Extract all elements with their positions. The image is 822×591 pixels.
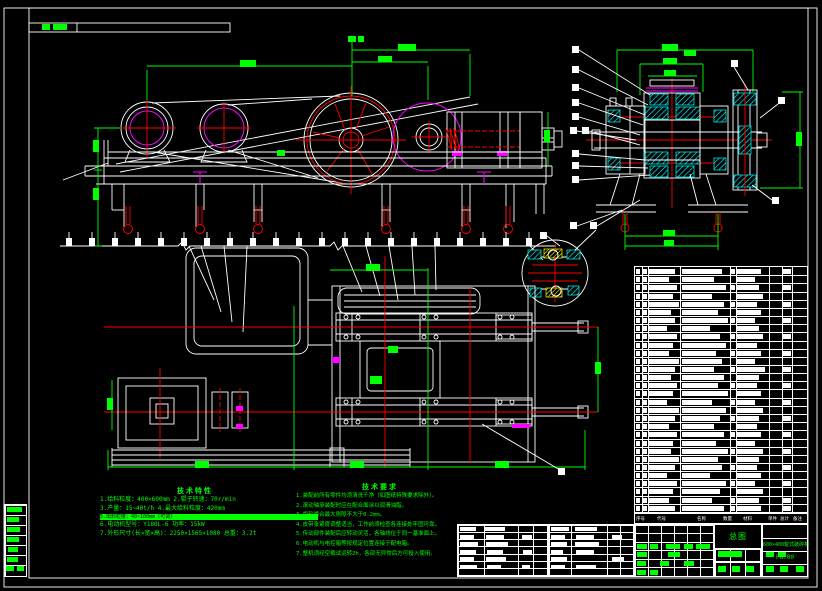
bom-header-label: 名称	[697, 516, 706, 522]
bom-cell-text-block	[636, 359, 640, 364]
bom-cell-text-block	[636, 400, 640, 405]
bom-cell-text-block	[783, 318, 791, 323]
bom-cell-text-block	[783, 481, 791, 486]
bom-cell-text-block	[682, 489, 720, 494]
bom-cell-text-block	[643, 457, 647, 462]
approval-grid	[634, 524, 714, 577]
redacted-text-block	[637, 544, 647, 549]
bom-cell-text-block	[682, 391, 728, 396]
bom-cell-text-block	[649, 416, 675, 421]
bom-cell-text-block	[731, 334, 735, 339]
redacted-text-block	[696, 544, 710, 549]
bom-cell-text-block	[737, 277, 755, 282]
bom-cell-text-block	[737, 318, 755, 323]
tech-requirement-item: 5.传动部件装配后应转动灵活，各轴线位于同一基准面上。	[296, 530, 464, 540]
tech-spec-highlight-line: 5.出料粒度：40~100mm（可调）	[100, 514, 318, 520]
grid-cell	[687, 567, 701, 577]
bom-cell-text-block	[682, 416, 720, 421]
redacted-text-block	[523, 550, 532, 554]
bom-cell-text-block	[731, 498, 735, 503]
bom-cell-text-block	[649, 367, 675, 372]
bom-cell-text-block	[682, 457, 718, 462]
bom-cell-text-block	[737, 310, 761, 315]
redacted-text-block	[460, 557, 474, 561]
bom-cell-text-block	[682, 302, 724, 307]
bom-cell-text-block	[636, 498, 640, 503]
bom-cell-text-block	[731, 318, 735, 323]
redacted-text-block	[637, 561, 646, 566]
redacted-text-block	[766, 566, 774, 572]
bom-cell-text-block	[731, 302, 735, 307]
bom-cell-text-block	[649, 343, 673, 348]
bom-cell-text-block	[636, 441, 640, 446]
bom-cell-text-block	[636, 449, 640, 454]
bom-cell-text-block	[649, 489, 673, 494]
bom-cell-text-block	[682, 359, 722, 364]
redacted-text-block	[485, 527, 505, 531]
bom-cell-text-block	[643, 326, 647, 331]
bom-cell-text-block	[682, 318, 728, 323]
bom-cell-text-block	[682, 343, 726, 348]
bom-cell-text-block	[643, 302, 647, 307]
bom-cell-text-block	[636, 457, 640, 462]
tech-spec-block: 技术特性 1.给料粒度：400×600mm 2.辊子转速：70r/min 3.产…	[100, 486, 324, 538]
grid-cell	[458, 568, 485, 576]
bom-cell-text-block	[643, 441, 647, 446]
bom-cell-text-block	[731, 416, 735, 421]
bom-cell-text-block	[636, 473, 640, 478]
bom-cell-text-block	[649, 408, 679, 413]
bom-cell-text-block	[643, 383, 647, 388]
bom-cell-text-block	[643, 359, 647, 364]
bom-cell-text-block	[737, 489, 763, 494]
part-callout-tag	[296, 238, 302, 246]
bom-cell-text-block	[737, 285, 759, 290]
bom-cell-text-block	[783, 367, 791, 372]
redacted-text-block	[576, 535, 594, 539]
redacted-text-block	[486, 542, 508, 546]
bom-cell-text-block	[643, 318, 647, 323]
grid-cell	[533, 568, 548, 576]
bom-cell-text-block	[783, 285, 791, 290]
bom-cell-text-block	[737, 408, 763, 413]
bom-cell-text-block	[682, 294, 712, 299]
part-callout-tag	[227, 238, 233, 246]
part-callout-tag	[89, 238, 95, 246]
bom-cell-text-block	[731, 351, 735, 356]
bom-cell-text-block	[643, 294, 647, 299]
redacted-text-block	[732, 566, 740, 572]
bom-cell-text-block	[682, 408, 726, 413]
bom-cell-text-block	[737, 343, 757, 348]
bom-cell-text-block	[636, 408, 640, 413]
bom-cell-text-block	[737, 441, 755, 446]
redacted-text-block	[666, 544, 680, 549]
bom-cell-text-block	[649, 424, 669, 429]
part-callout-tag	[411, 238, 417, 246]
redacted-text-block	[551, 527, 569, 531]
part-callout-tag	[342, 238, 348, 246]
bom-cell-text-block	[649, 269, 675, 274]
bom-cell-text-block	[682, 383, 718, 388]
plan-view	[104, 248, 601, 475]
part-callout-tag	[112, 238, 118, 246]
redacted-text-block	[460, 550, 476, 554]
bom-cell-text-block	[643, 351, 647, 356]
bom-cell-text-block	[643, 391, 647, 396]
bom-cell-text-block	[636, 318, 640, 323]
bom-cell-text-block	[649, 506, 675, 511]
bom-cell-text-block	[643, 432, 647, 437]
bom-cell-text-block	[737, 351, 761, 356]
bom-cell-text-block	[649, 277, 669, 282]
anchor-bolts	[124, 206, 513, 234]
bom-cell-text-block	[643, 489, 647, 494]
redacted-text-block	[637, 570, 646, 575]
grid-cell	[700, 567, 714, 577]
redacted-text-block	[17, 566, 24, 571]
redacted-text-block	[551, 542, 567, 546]
side-section-view	[570, 44, 803, 250]
bom-cell-text-block	[737, 391, 761, 396]
redacted-text-block	[796, 566, 804, 572]
bom-cell-text-block	[737, 269, 761, 274]
tech-spec-line: 7.外形尺寸(长×宽×高)：2250×1565×1080 总重：3.2t	[100, 530, 324, 539]
bom-cell-text-block	[731, 465, 735, 470]
redacted-text-block	[460, 527, 476, 531]
bom-cell-text-block	[783, 498, 791, 503]
bom-cell-text-block	[682, 277, 714, 282]
grid-cell	[620, 568, 634, 576]
bom-cell-text-block	[643, 408, 647, 413]
bom-cell-text-block	[643, 310, 647, 315]
bom-cell-text-block	[649, 449, 671, 454]
bom-cell-text-block	[737, 416, 759, 421]
tech-requirement-item: 7.整机须经空载试运转2h，各部无异常后方可投入使用。	[296, 550, 464, 560]
redacted-text-block	[487, 565, 501, 569]
bom-header-label: 单件	[768, 516, 777, 522]
bom-cell-text-block	[649, 481, 677, 486]
tech-spec-line: 3.产量：15~40t/h 4.最大给料粒度：420mm	[100, 505, 324, 514]
bom-cell-text-block	[682, 449, 728, 454]
tech-requirement-item: 2.滚动轴承装配时应在配合面涂以润滑油脂。	[296, 502, 464, 512]
bom-cell-text-block	[636, 416, 640, 421]
redacted-text-block	[718, 566, 726, 572]
redacted-text-block	[460, 565, 477, 569]
bom-cell-text-block	[649, 310, 671, 315]
bom-cell-text-block	[737, 294, 763, 299]
tech-requirement-item: 1.装配前所有零件均须清洗干净（如图纸特殊要求除外）。	[296, 492, 464, 502]
bom-cell-text-block	[636, 334, 640, 339]
bom-cell-text-block	[649, 383, 677, 388]
bom-cell-text-block	[636, 343, 640, 348]
bom-cell-text-block	[636, 302, 640, 307]
bom-cell-text-block	[731, 269, 735, 274]
leader-lines	[189, 246, 543, 332]
bom-cell-text-block	[737, 359, 755, 364]
redacted-text-block	[660, 561, 669, 566]
bom-cell-text-block	[643, 400, 647, 405]
bom-header-label: 材料	[743, 516, 752, 522]
bom-cell-text-block	[649, 375, 671, 380]
bom-cell-text-block	[643, 269, 647, 274]
bom-cell-text-block	[643, 465, 647, 470]
bom-cell-text-block	[636, 294, 640, 299]
redacted-text-block	[718, 551, 742, 557]
bom-cell-text-block	[649, 432, 677, 437]
redacted-text-block	[612, 557, 624, 561]
bom-cell-text-block	[682, 424, 714, 429]
redacted-text-block	[8, 547, 18, 552]
redacted-text-block	[460, 542, 478, 546]
bom-cell-text-block	[783, 351, 791, 356]
grid-cell	[607, 568, 621, 576]
bom-cell-text-block	[636, 285, 640, 290]
bom-cell-text-block	[636, 310, 640, 315]
bom-cell-text-block	[682, 375, 724, 380]
redacted-text-block	[780, 566, 788, 572]
bom-cell-text-block	[649, 473, 667, 478]
tech-requirement-item: 3.齿轮啮合最大侧隙不大于0.2mm。	[296, 511, 464, 521]
redacted-text-block	[7, 527, 20, 532]
bom-cell-text-block	[783, 465, 791, 470]
redacted-text-block	[612, 535, 622, 539]
redacted-text-block	[668, 552, 680, 557]
part-callout-tag	[480, 238, 486, 246]
grid-cell	[484, 568, 519, 576]
bom-cell-text-block	[783, 506, 791, 511]
tech-requirement-item: 4.皮带张紧度调整适当，工作前须检查各连接处牢固可靠。	[296, 521, 464, 531]
bom-cell-text-block	[643, 473, 647, 478]
grid-cell	[571, 568, 608, 576]
bom-cell-text-block	[649, 391, 673, 396]
tech-spec-line: 6.电动机型号：Y180L-6 功率：15kW	[100, 521, 324, 530]
bom-cell-text-block	[649, 465, 675, 470]
bom-cell-text-block	[636, 326, 640, 331]
bom-cell-text-block	[783, 432, 791, 437]
bom-header-label: 序号	[636, 516, 645, 522]
bom-cell-text-block	[682, 498, 712, 503]
bom-cell-text-block	[636, 383, 640, 388]
bom-cell-text-block	[649, 457, 679, 462]
bom-cell-text-block	[649, 334, 677, 339]
part-callout-tag	[457, 238, 463, 246]
bom-cell-text-block	[682, 285, 726, 290]
bom-cell-text-block	[737, 375, 759, 380]
bom-cell-text-block	[737, 481, 755, 486]
bom-header-label: 代号	[657, 516, 666, 522]
bom-cell-text-block	[643, 334, 647, 339]
bom-cell-text-block	[643, 277, 647, 282]
bom-cell-text-block	[737, 400, 755, 405]
redacted-text-block	[7, 537, 19, 542]
bom-cell-text-block	[682, 310, 718, 315]
redacted-text-block	[684, 561, 694, 566]
front-elevation-view	[60, 36, 562, 250]
part-callout-tag	[66, 238, 72, 246]
bom-cell-text-block	[737, 367, 765, 372]
tech-requirements-block: 技术要求 1.装配前所有零件均须清洗干净（如图纸特殊要求除外）。 2.滚动轴承装…	[296, 482, 464, 559]
bom-cell-text-block	[636, 432, 640, 437]
grid-cell	[661, 567, 675, 577]
part-callout-tag	[273, 238, 279, 246]
bom-cell-text-block	[731, 400, 735, 405]
bom-cell-text-block	[737, 326, 759, 331]
bom-cell-text-block	[783, 400, 791, 405]
bom-cell-text-block	[649, 498, 669, 503]
part-callout-tag	[365, 238, 371, 246]
part-callout-tag	[526, 238, 532, 246]
bom-cell-text-block	[731, 481, 735, 486]
redacted-text-block	[650, 570, 658, 575]
redacted-text-block	[746, 566, 754, 572]
bom-cell-text-block	[682, 441, 716, 446]
cad-drawing-sheet: .w{stroke:#fff;fill:none;stroke-width:0.…	[0, 0, 822, 591]
tech-spec-title: 技术特性	[130, 486, 260, 496]
bom-cell-text-block	[643, 367, 647, 372]
bom-cell-text-block	[643, 449, 647, 454]
bom-cell-text-block	[649, 359, 679, 364]
grid-cell	[549, 568, 572, 576]
bom-parts-table: 序号代号名称数量材料单件总计备注	[634, 266, 808, 524]
bom-cell-text-block	[643, 498, 647, 503]
part-callout-tag	[250, 238, 256, 246]
bom-header-label: 数量	[723, 516, 732, 522]
bom-cell-text-block	[737, 383, 757, 388]
redacted-text-block	[575, 542, 599, 546]
bom-cell-text-block	[682, 400, 712, 405]
bom-cell-text-block	[737, 424, 757, 429]
redacted-text-block	[551, 535, 565, 539]
redacted-text-block	[487, 550, 503, 554]
redacted-text-block	[576, 565, 596, 569]
part-callout-tag	[135, 238, 141, 246]
part-callout-row	[66, 232, 532, 246]
bom-cell-text-block	[783, 449, 791, 454]
product-name: 600×400辊式破碎机	[763, 539, 807, 552]
redacted-text-block	[42, 24, 50, 30]
redacted-text-block	[7, 557, 18, 562]
bom-cell-text-block	[643, 506, 647, 511]
bom-cell-text-block	[636, 277, 640, 282]
redacted-text-block	[522, 535, 532, 539]
bom-cell-text-block	[682, 432, 724, 437]
redacted-text-block	[486, 557, 506, 561]
bom-cell-text-block	[737, 498, 759, 503]
redacted-text-block	[522, 565, 530, 569]
bom-cell-text-block	[649, 302, 679, 307]
bom-cell-text-block	[636, 489, 640, 494]
bom-cell-text-block	[731, 432, 735, 437]
bom-cell-text-block	[731, 506, 735, 511]
bom-cell-text-block	[682, 351, 716, 356]
bom-cell-text-block	[636, 351, 640, 356]
bom-cell-text-block	[737, 506, 761, 511]
part-callout-tag	[319, 238, 325, 246]
bom-cell-text-block	[636, 506, 640, 511]
redacted-text-block	[637, 552, 647, 557]
redacted-text-block	[778, 552, 786, 557]
bom-cell-text-block	[783, 269, 791, 274]
grid-cell	[745, 549, 761, 562]
bom-cell-text-block	[636, 375, 640, 380]
bom-cell-text-block	[643, 416, 647, 421]
bom-cell-text-block	[649, 294, 673, 299]
bom-cell-text-block	[731, 449, 735, 454]
part-callout-tag	[204, 238, 210, 246]
redacted-text-block	[650, 544, 658, 549]
redacted-text-block	[460, 535, 474, 539]
bom-cell-text-block	[682, 269, 722, 274]
bom-cell-text-block	[783, 383, 791, 388]
part-callout-tag	[181, 238, 187, 246]
tech-spec-line: 1.给料粒度：400×600mm 2.辊子转速：70r/min	[100, 496, 324, 505]
part-callout-tag	[503, 238, 509, 246]
redacted-text-block	[6, 566, 14, 571]
bom-cell-text-block	[682, 465, 722, 470]
bom-cell-text-block	[649, 400, 667, 405]
bom-cell-text-block	[731, 285, 735, 290]
bom-cell-text-block	[643, 424, 647, 429]
bom-cell-text-block	[682, 326, 710, 331]
bom-header-label: 备注	[793, 516, 802, 522]
bom-cell-text-block	[649, 441, 673, 446]
bom-cell-text-block	[643, 285, 647, 290]
bom-cell-text-block	[682, 481, 726, 486]
redacted-text-block	[486, 535, 504, 539]
redacted-text-block	[7, 517, 19, 522]
detail-view	[522, 230, 596, 306]
bom-header-label: 总计	[780, 516, 789, 522]
bom-cell-text-block	[643, 343, 647, 348]
redacted-text-block	[575, 527, 597, 531]
redacted-text-block	[551, 565, 565, 569]
grid-cell	[674, 567, 688, 577]
redacted-text-block	[53, 24, 67, 30]
bom-cell-text-block	[737, 457, 759, 462]
bom-cell-text-block	[737, 334, 763, 339]
bom-cell-text-block	[649, 318, 675, 323]
bom-cell-text-block	[636, 269, 640, 274]
bom-cell-text-block	[737, 302, 757, 307]
bom-cell-text-block	[737, 432, 761, 437]
bom-cell-text-block	[783, 302, 791, 307]
redacted-text-block	[684, 544, 693, 549]
redacted-text-block	[551, 550, 563, 554]
drawing-type-cell: 总图	[714, 524, 762, 549]
bom-cell-text-block	[737, 449, 763, 454]
tech-requirements-title: 技术要求	[296, 482, 464, 492]
grid-cell	[518, 568, 534, 576]
redacted-text-block	[7, 507, 22, 512]
part-callout-tag	[388, 238, 394, 246]
bom-cell-text-block	[649, 326, 667, 331]
bom-cell-text-block	[636, 481, 640, 486]
bom-cell-text-block	[636, 367, 640, 372]
bom-cell-text-block	[636, 391, 640, 396]
bom-cell-text-block	[783, 416, 791, 421]
bom-cell-text-block	[737, 465, 757, 470]
redacted-text-block	[576, 550, 594, 554]
part-callout-tag	[158, 238, 164, 246]
redacted-text-block	[766, 552, 774, 557]
part-callout-tag	[434, 238, 440, 246]
bom-cell-text-block	[737, 473, 761, 478]
bom-cell-text-block	[643, 375, 647, 380]
bom-cell-text-block	[636, 465, 640, 470]
bom-cell-text-block	[649, 351, 669, 356]
front-view-dimensions	[93, 36, 550, 246]
